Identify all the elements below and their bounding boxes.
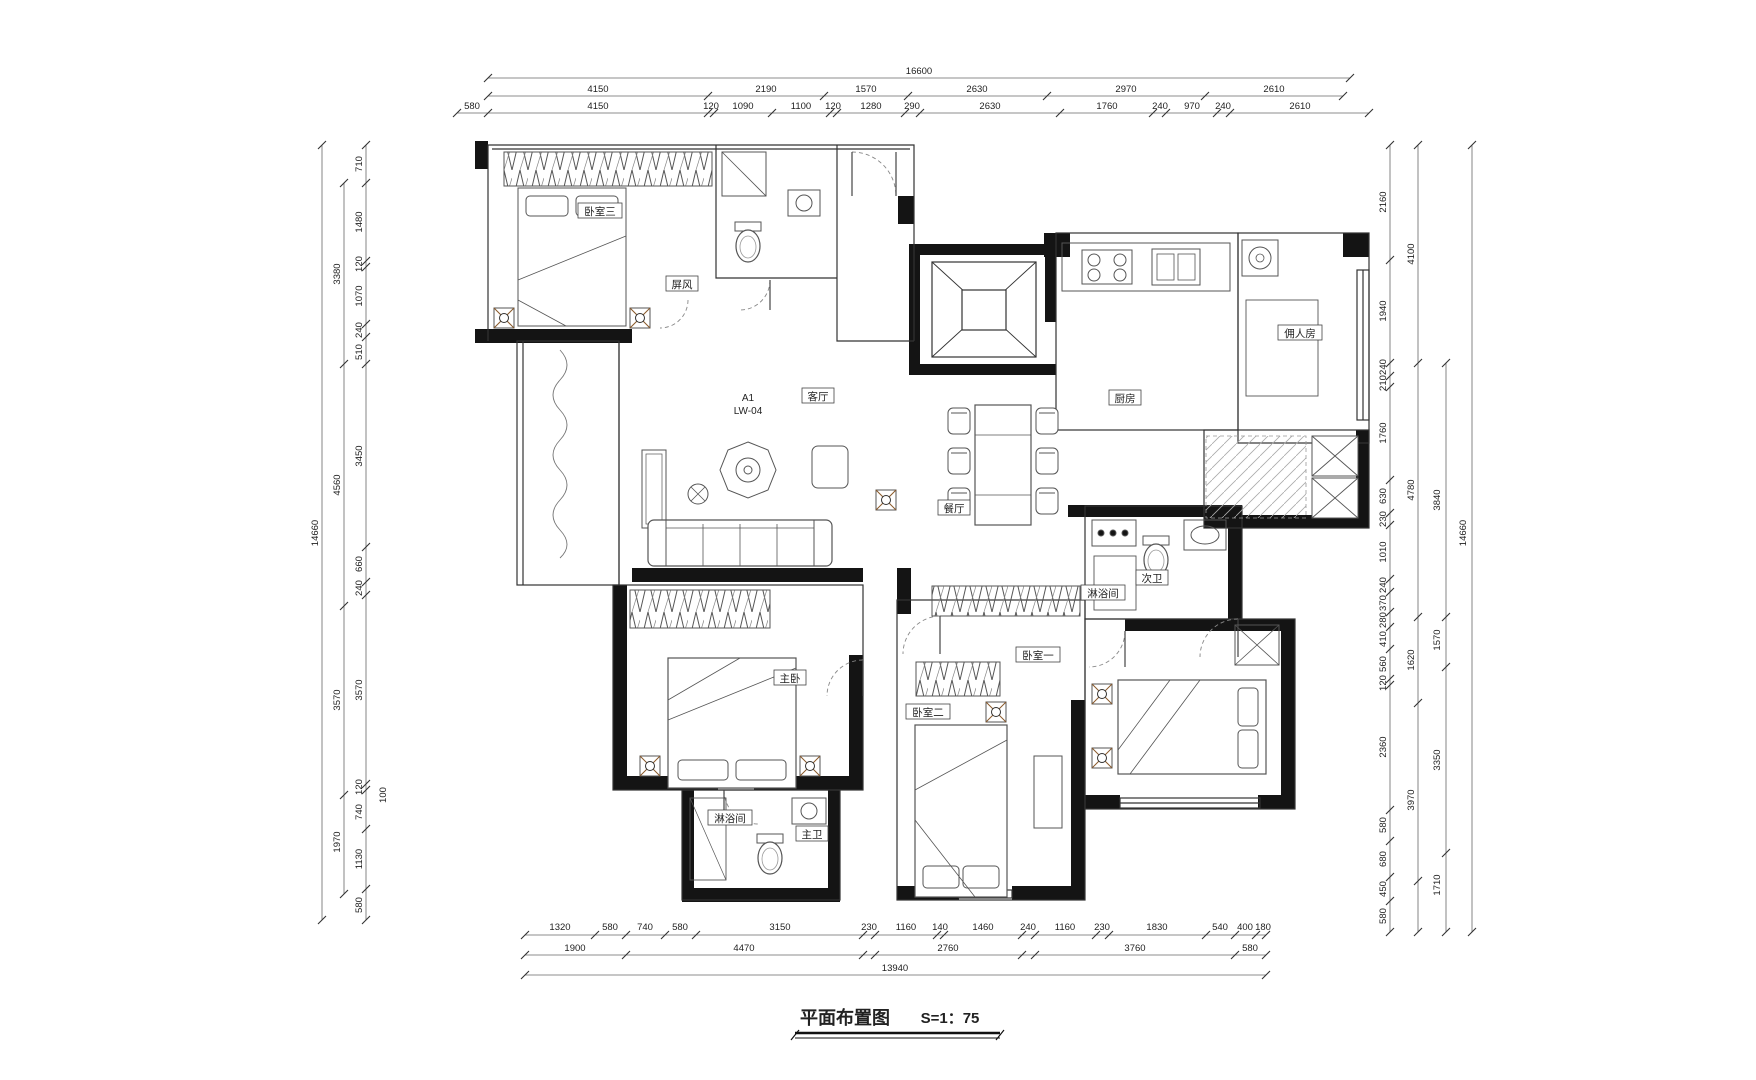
dim-label: 560: [1378, 656, 1389, 672]
dim-label: 1460: [972, 922, 993, 933]
dim-label: 1160: [1055, 922, 1075, 933]
dim-label: 660: [354, 556, 365, 572]
dim-label: 2190: [755, 84, 776, 95]
dim-label: 4470: [733, 943, 754, 954]
dim-label: 580: [602, 922, 618, 933]
dim-label: 290: [904, 101, 920, 112]
dim-label: 3570: [332, 689, 343, 710]
dim-label: 140: [932, 922, 948, 933]
room-label-kitchen: 厨房: [1115, 392, 1136, 405]
dim-label: 2610: [1289, 101, 1310, 112]
dim-labels-top: 16600 4150 2190 1570 2630 2970 2610 580 …: [464, 66, 1311, 112]
dim-label: 580: [1378, 817, 1389, 833]
dim-label: 1970: [332, 831, 343, 852]
dim-label: 120: [1378, 675, 1389, 691]
dining-chair: [948, 408, 970, 434]
dim-label: 3350: [1432, 749, 1443, 770]
dim-label: 1010: [1378, 541, 1389, 562]
dim-label: 1280: [860, 101, 881, 112]
dim-label: 370: [1378, 595, 1389, 611]
dim-label: 580: [1242, 943, 1258, 954]
room-label-bedroom2: 卧室二: [912, 706, 944, 719]
nightstand-lamp: [1092, 684, 1112, 704]
dim-label: 3380: [332, 263, 343, 284]
dim-label: 710: [354, 156, 365, 172]
dim-label: 1830: [1146, 922, 1167, 933]
dim-label: 740: [637, 922, 653, 933]
dim-label: 1710: [1432, 874, 1443, 895]
dim-label: 580: [354, 897, 365, 913]
dim-label: 2160: [1378, 191, 1389, 212]
bedroom2-furniture: [915, 725, 1062, 897]
dim-label: 16600: [906, 66, 932, 77]
dim-label: 540: [1212, 922, 1228, 933]
dim-label: 1900: [564, 943, 585, 954]
dim-label: 1570: [855, 84, 876, 95]
elevator-shaft: [932, 262, 1036, 357]
title-block: 平面布置图 S=1：75: [791, 1007, 1004, 1040]
maid-room-fixtures: [1242, 240, 1318, 396]
dim-label: 2360: [1378, 736, 1389, 757]
west-balcony: [553, 350, 567, 558]
dim-label: 3150: [769, 922, 790, 933]
dim-label: 240: [1152, 101, 1168, 112]
elevation-marker-code: LW-04: [734, 406, 763, 417]
toilet: [757, 834, 783, 874]
dim-label: 1570: [1432, 629, 1443, 650]
dim-label: 210: [1378, 375, 1389, 391]
dim-label: 1940: [1378, 300, 1389, 321]
dim-label: 2970: [1115, 84, 1136, 95]
dim-label: 2610: [1263, 84, 1284, 95]
nightstand-lamp: [986, 702, 1006, 722]
dim-label: 3970: [1406, 789, 1417, 810]
dim-label: 3840: [1432, 489, 1443, 510]
dim-label: 400: [1237, 922, 1253, 933]
dim-label: 120: [354, 256, 365, 272]
dim-label: 2760: [937, 943, 958, 954]
dining-furniture: [975, 405, 1031, 525]
dining-chair: [1036, 448, 1058, 474]
dim-label: 100: [378, 787, 389, 803]
dim-label: 3570: [354, 679, 365, 700]
dim-label: 1760: [1096, 101, 1117, 112]
dim-label: 120: [354, 779, 365, 795]
dim-label: 2630: [966, 84, 987, 95]
dining-chair: [1036, 408, 1058, 434]
dim-label: 1130: [354, 849, 365, 869]
drawing-title: 平面布置图: [800, 1007, 890, 1028]
dim-label: 4780: [1406, 479, 1417, 500]
dim-label: 180: [1255, 922, 1271, 933]
dim-label: 1100: [791, 101, 811, 112]
dim-label: 14660: [1458, 520, 1469, 546]
dim-label: 280: [1378, 612, 1389, 628]
dim-label: 230: [861, 922, 877, 933]
dim-label: 740: [354, 804, 365, 820]
dim-labels-bottom: 1320 580 740 580 3150 230 1160 140 1460 …: [549, 922, 1271, 974]
dim-label: 120: [825, 101, 841, 112]
dining-chair: [948, 448, 970, 474]
room-label-bath1: 主卫: [802, 829, 823, 841]
room-label-shower1: 淋浴间: [714, 812, 746, 825]
dim-label: 1160: [896, 922, 916, 933]
kitchen-fixtures: [1062, 243, 1230, 291]
bath3-fixtures: [722, 152, 820, 216]
balcony-hatch: [1206, 436, 1358, 518]
bedroom1-furniture: [1118, 625, 1279, 774]
dim-label: 240: [354, 580, 365, 596]
dim-label: 1320: [549, 922, 570, 933]
dim-label: 1620: [1406, 649, 1417, 670]
dim-label: 230: [1094, 922, 1110, 933]
floor-plan-drawing: 卧室三 屏风 客厅 A1 LW-04 餐厅 厨房 佣人房 次卫 淋浴间 主卧 卧…: [0, 0, 1756, 1080]
dim-label: 14660: [310, 520, 321, 546]
dim-label: 1760: [1378, 422, 1389, 443]
dim-label: 4560: [332, 474, 343, 495]
dim-label: 4150: [587, 84, 608, 95]
dim-label: 240: [1215, 101, 1231, 112]
dim-label: 3760: [1124, 943, 1145, 954]
room-label-bedroom1: 卧室一: [1022, 649, 1054, 662]
elevation-marker-grid: A1: [742, 393, 755, 404]
dim-label: 450: [1378, 881, 1389, 897]
room-label-screen: 屏风: [672, 279, 693, 291]
nightstand-lamp: [640, 756, 660, 776]
dim-label: 580: [464, 101, 480, 112]
nightstand-lamp: [1092, 748, 1112, 768]
room-label-shower2: 淋浴间: [1087, 587, 1119, 600]
room-label-bedroom3: 卧室三: [584, 205, 616, 218]
dim-label: 970: [1184, 101, 1200, 112]
dim-label: 13940: [882, 963, 908, 974]
dim-label: 1090: [732, 101, 753, 112]
floor-plan-page: 卧室三 屏风 客厅 A1 LW-04 餐厅 厨房 佣人房 次卫 淋浴间 主卧 卧…: [0, 0, 1756, 1080]
dim-label: 510: [354, 344, 365, 360]
room-label-living: 客厅: [808, 390, 829, 403]
dim-labels-right: 2160 1940 240 210 1760 630 230 1010 240 …: [1378, 191, 1469, 924]
dim-label: 4100: [1406, 243, 1417, 264]
nightstand-lamp: [630, 308, 650, 328]
nightstand-lamp: [494, 308, 514, 328]
dim-label: 1070: [354, 285, 365, 306]
dim-label: 4150: [587, 101, 608, 112]
dining-chair: [1036, 488, 1058, 514]
room-label-bath2: 次卫: [1142, 572, 1163, 585]
dim-label: 240: [354, 322, 365, 338]
dim-label: 240: [1378, 359, 1389, 375]
dim-label: 2630: [979, 101, 1000, 112]
side-lamp: [876, 490, 896, 510]
room-label-master: 主卧: [780, 672, 801, 685]
dim-label: 240: [1378, 577, 1389, 593]
dim-label: 630: [1378, 488, 1389, 504]
room-label-dining: 餐厅: [944, 502, 965, 515]
room-label-maid: 佣人房: [1284, 327, 1316, 340]
dim-label: 120: [703, 101, 719, 112]
dim-label: 580: [672, 922, 688, 933]
dim-label: 580: [1378, 908, 1389, 924]
toilet: [735, 222, 761, 262]
dim-label: 3450: [354, 445, 365, 466]
dim-label: 240: [1020, 922, 1036, 933]
dim-label: 1480: [354, 211, 365, 232]
dim-label: 230: [1378, 511, 1389, 527]
nightstand-lamp: [800, 756, 820, 776]
drawing-scale: S=1：75: [921, 1010, 980, 1027]
dim-label: 680: [1378, 851, 1389, 867]
dim-label: 410: [1378, 631, 1389, 647]
living-furniture: [642, 442, 848, 566]
